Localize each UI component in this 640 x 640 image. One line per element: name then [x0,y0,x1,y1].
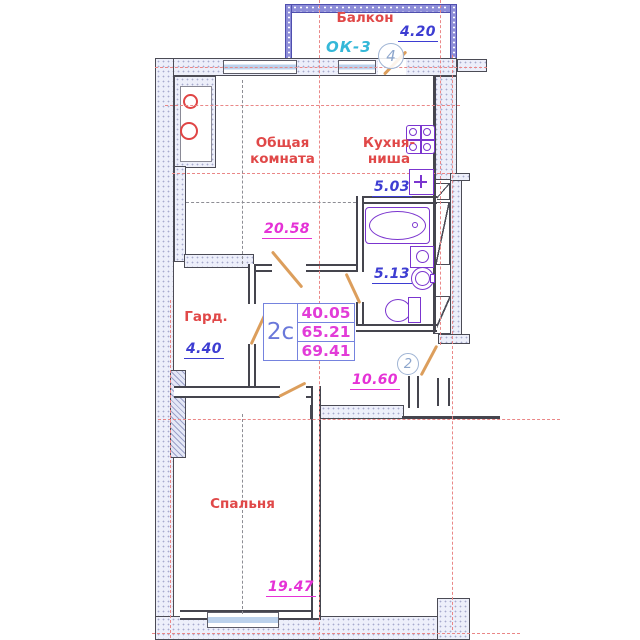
area-common: 20.58 [262,221,312,239]
area-wardrobe: 4.40 [184,341,224,359]
wall-bath-north [356,196,437,204]
washer-icon [416,250,429,263]
toilet-tank-icon [408,297,421,323]
wall-bedroom-pier [170,370,186,458]
area-bedroom: 19.47 [266,579,316,597]
area-bathroom: 5.13 [372,266,412,284]
room-label-kitchen: Кухня- ниша [358,136,420,168]
wall-hall-se-post [408,376,419,408]
balcony-glazing-left [285,4,292,60]
centerline [186,202,356,203]
wall-entry-below [437,378,450,406]
wall-bath-east-line [433,76,436,332]
room-label-kitchen-line1: Кухня- [358,136,420,152]
kitchen-sink-icon [420,175,422,188]
wall-shaft-cap-top [450,173,470,181]
room-label-common-line1: Общая [240,136,325,152]
door-bedroom [278,382,306,398]
room-label-wardrobe: Гард. [182,310,230,326]
summary-living-area: 40.05 [298,304,354,323]
wall-left-inner [174,166,186,262]
wall-bath-west-a [356,196,364,272]
floor-plan: 4 2 Балкон ОК-3 4.20 Общая комната 20.58… [0,0,640,640]
axis-line [452,55,453,630]
room-label-common-line2: комната [240,152,325,168]
centerline [242,80,243,264]
door-entrance [420,345,439,376]
apartment-type-label: 2с [264,304,298,360]
room-label-kitchen-line2: ниша [358,152,420,168]
shaft-box-icon [435,183,450,200]
room-label-common: Общая комната [240,136,325,168]
window-bedroom [207,612,279,628]
wall-top-right-stub [457,59,487,72]
centerline [242,414,243,614]
apartment-summary-box: 2с 40.05 65.21 69.41 [263,303,355,361]
wall-common-south-b [306,264,363,272]
wall-kitchen-east [433,76,457,180]
stove-burner-icon [423,143,431,151]
area-hall: 10.60 [350,372,400,390]
wall-wardrobe-south [174,386,280,398]
vent-duct-icon [183,94,198,109]
wall-bath-south [356,324,437,332]
summary-area: 65.21 [298,323,354,342]
stove-burner-icon [423,128,431,136]
apartment-areas: 40.05 65.21 69.41 [298,304,354,360]
basin-tap-icon [430,274,435,283]
area-balcony: 4.20 [398,24,438,42]
wall-hall-south [310,405,404,419]
wall-wardrobe-east-a [248,264,256,304]
balcony-glazing-right [450,4,457,60]
room-label-balcony: Балкон [325,11,405,27]
wall-wardrobe-lintel [184,254,254,268]
door-common-room [271,251,304,289]
area-kitchen: 5.03 [372,179,412,197]
axis-line [170,300,171,638]
shaft-box-icon [435,202,450,265]
wall-shaft-cap-bottom [438,334,470,344]
axis-line [152,633,520,634]
axis-marker-4: 4 [378,43,404,69]
entrance-marker-2-label: 2 [404,357,412,372]
wall-left [155,58,174,640]
summary-total-area: 69.41 [298,342,354,360]
bathtub-drain-icon [412,222,418,228]
wall-wardrobe-east-b [248,344,256,390]
room-label-bedroom: Спальня [205,497,280,513]
axis-marker-4-label: 4 [386,47,396,65]
vent-duct-icon [180,122,198,140]
axis-line [165,105,460,106]
entrance-marker-2: 2 [397,353,419,375]
axis-line [158,419,560,420]
basin-icon [415,271,430,286]
window-code-label: ОК-3 [326,38,372,56]
axis-line [155,67,487,68]
door-bathroom [345,273,362,304]
